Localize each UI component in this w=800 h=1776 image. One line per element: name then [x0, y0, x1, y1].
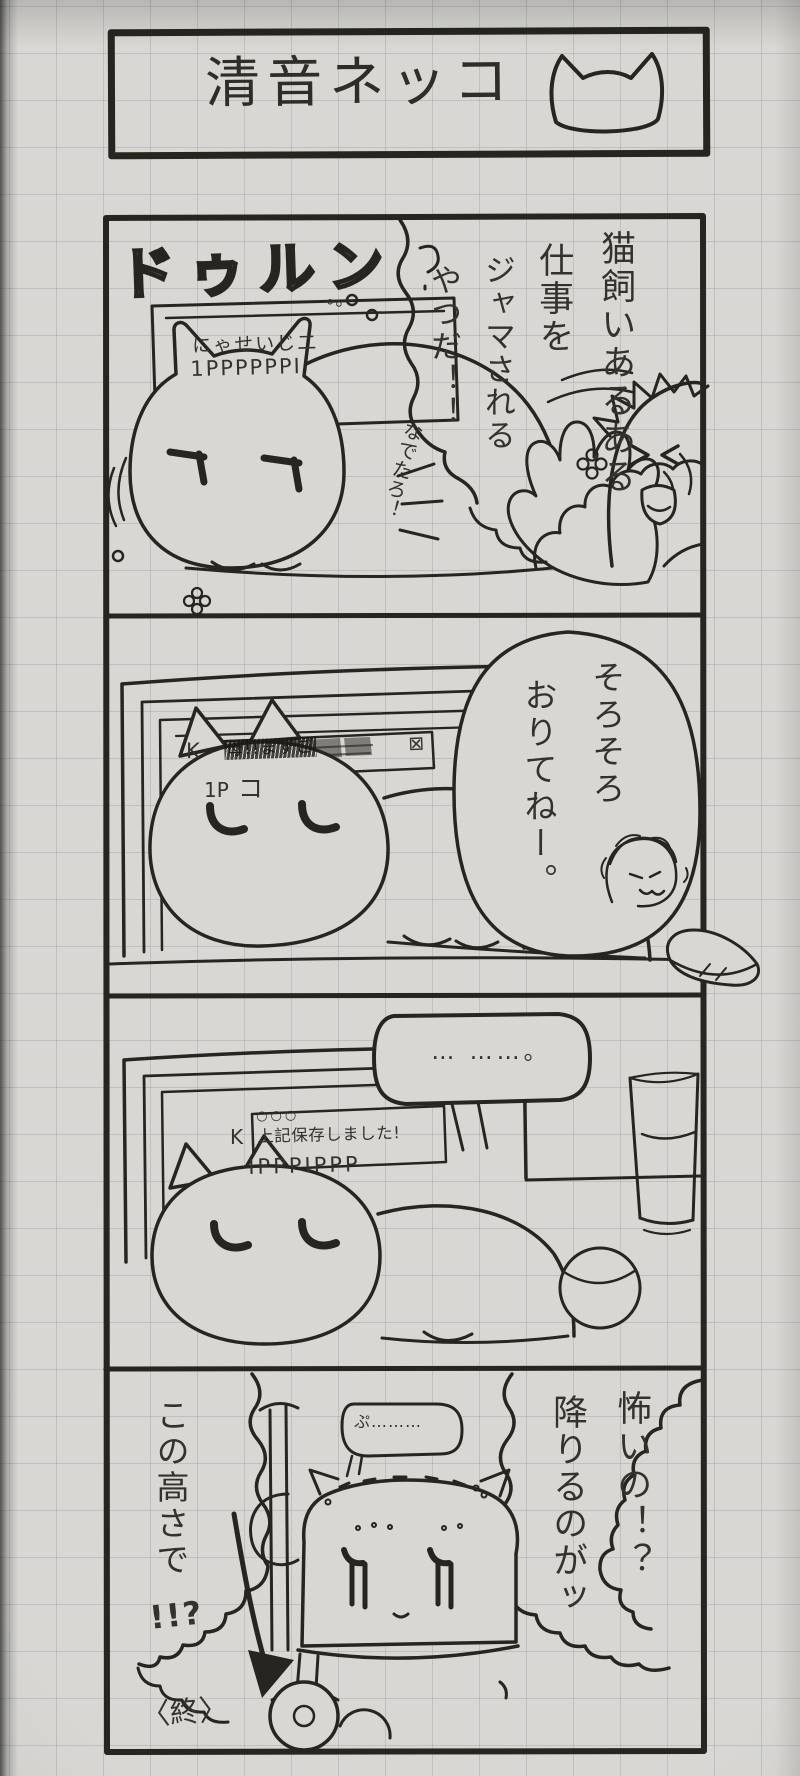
height-text: この高さで [152, 1398, 187, 1578]
chair-pole [260, 1403, 298, 1650]
flower-doodle-left [184, 588, 210, 614]
sfx-text: ドゥルン [118, 236, 399, 305]
ball [560, 1248, 640, 1328]
speech-line-1: そろそろ [588, 660, 623, 808]
owner-arm [664, 544, 703, 566]
saved-message: 上記保存しました! [257, 1124, 401, 1145]
bubble-tail [452, 1102, 487, 1150]
screen-line2b: コ [238, 776, 263, 803]
cat-body [378, 1206, 574, 1336]
screen-scribbled-text: 母!!まずご [224, 737, 316, 760]
cat-blob [302, 1480, 518, 1646]
screen-prefix: K [186, 740, 200, 762]
water-glass [630, 1073, 698, 1234]
chair-armrest [251, 1494, 299, 1565]
end-mark: 〈終〉 [140, 1694, 229, 1731]
screen-line2a: 1P [204, 780, 229, 801]
panel2-artwork [110, 632, 759, 985]
fear-line-2: 降りるのがッ [548, 1394, 585, 1616]
page-title: 清音ネッコ [205, 51, 516, 112]
screen-prefix: K [230, 1127, 243, 1148]
speech-line-2: おりてねー。 [520, 678, 555, 900]
ellipsis-speech: … ……。 [398, 1040, 584, 1064]
narration-line-2: 仕事を [534, 242, 571, 356]
slipper [667, 930, 758, 985]
window-traffic-dots: ○○○ [256, 1109, 299, 1124]
motion-arcs [108, 458, 126, 526]
chair-seat [298, 1646, 518, 1658]
notebook-photo: 清音ネッコ [0, 0, 800, 1776]
cat-head [152, 1166, 380, 1344]
fear-line-1: 怖いの！？ [612, 1390, 649, 1580]
desk-edge [110, 958, 700, 964]
narration-line-1: 猫飼いあるある [596, 230, 633, 496]
narration-line-3: ジャマされる [480, 254, 513, 452]
window-close-glyph: ⊠ [408, 733, 425, 754]
laptop-screen-line2: 1PPPPPPI [190, 355, 302, 380]
keyboard-mash-text: IPPPIPPP [248, 1153, 361, 1178]
desk-edge [526, 1176, 700, 1180]
height-exclamation: !!? [148, 1596, 205, 1635]
narration-line-4: やつだ！！ [426, 264, 459, 429]
caster-wheel [270, 1682, 338, 1750]
mutter-text: ぷ……… [354, 1414, 422, 1431]
laptop-screen-line1: にゃせいじ二 [192, 333, 318, 356]
cat-head [150, 742, 388, 946]
speech-bubble [454, 632, 700, 956]
